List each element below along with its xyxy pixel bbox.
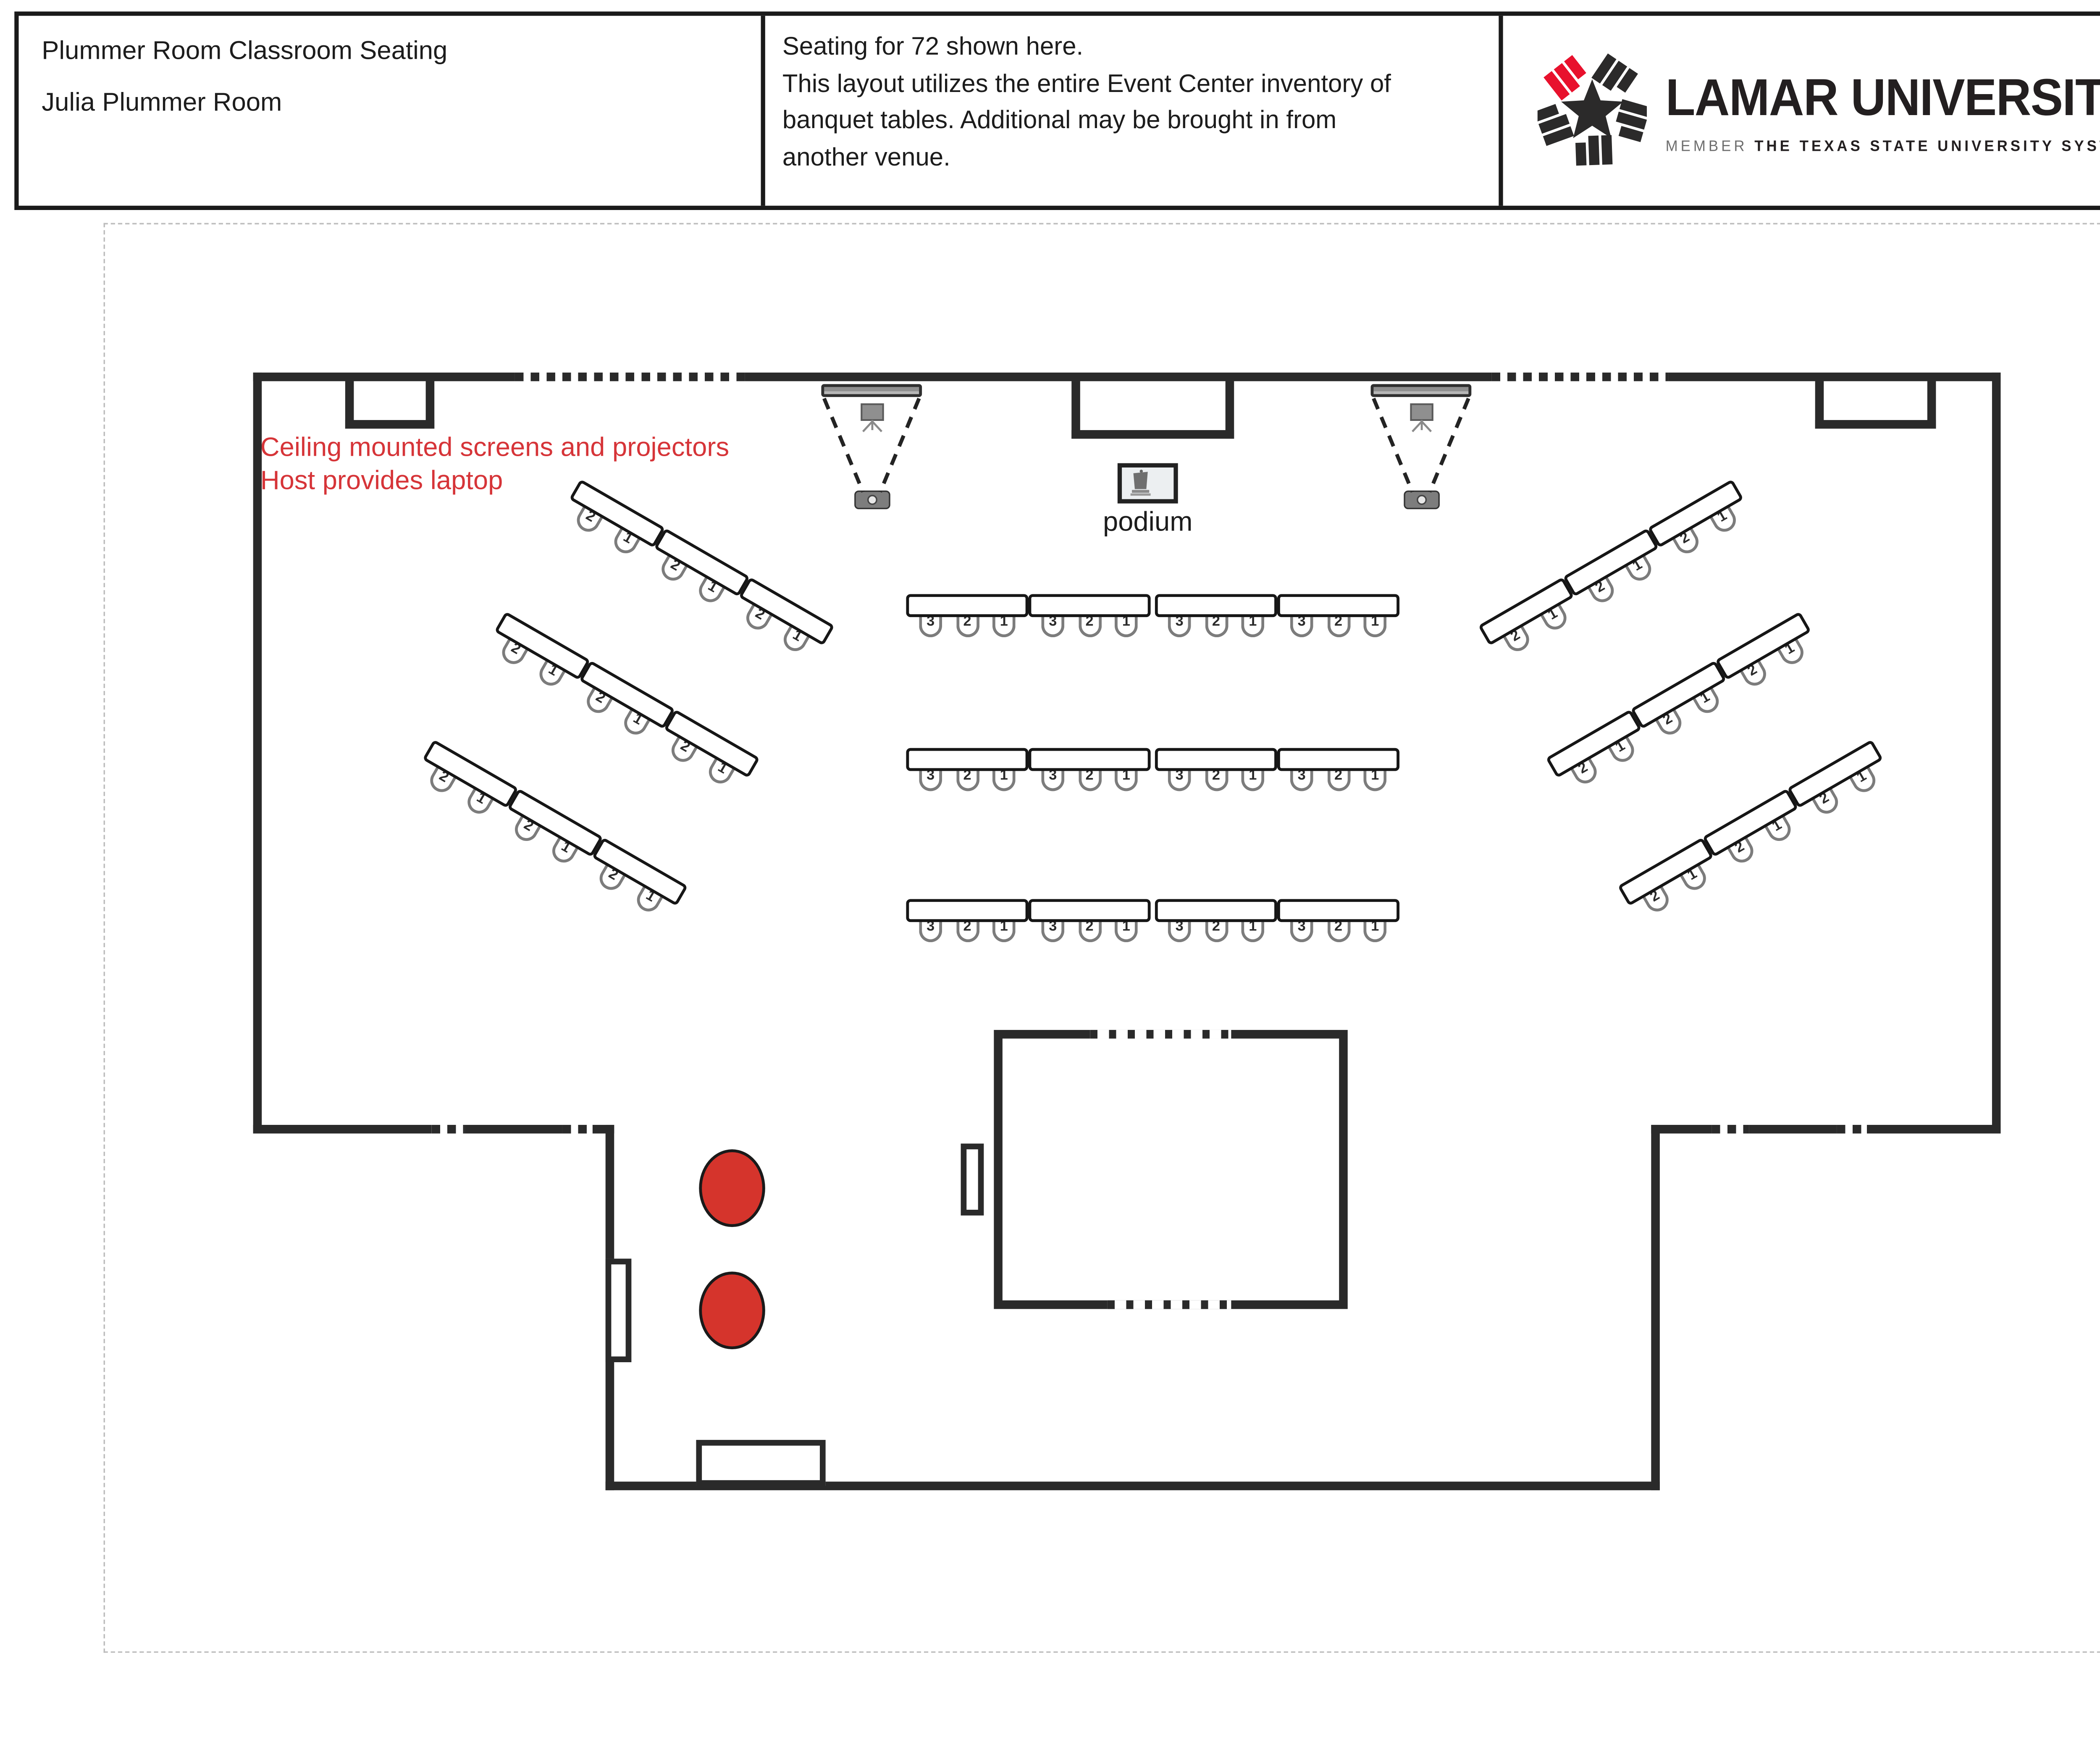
chair-icon: 3 bbox=[1168, 614, 1191, 637]
tripod-screen-icon bbox=[861, 404, 1433, 431]
chair-icon: 1 bbox=[1241, 768, 1264, 791]
banquet-table bbox=[1277, 594, 1399, 617]
chair-icon: 1 bbox=[992, 919, 1016, 942]
chair-icon: 1 bbox=[1115, 768, 1138, 791]
banquet-table bbox=[906, 899, 1028, 922]
chair-icon: 1 bbox=[1241, 919, 1264, 942]
chair-icon: 1 bbox=[1363, 768, 1386, 791]
chair-icon: 3 bbox=[1041, 768, 1064, 791]
banquet-table bbox=[1155, 899, 1277, 922]
chair-icon: 3 bbox=[919, 919, 942, 942]
banquet-table bbox=[906, 594, 1028, 617]
chair-icon: 3 bbox=[1041, 919, 1064, 942]
banquet-table bbox=[1029, 899, 1151, 922]
chair-icon: 3 bbox=[1168, 768, 1191, 791]
chair-icon: 3 bbox=[1041, 614, 1064, 637]
projection-cone bbox=[824, 399, 1468, 492]
banquet-table bbox=[1277, 899, 1399, 922]
banquet-table bbox=[1029, 748, 1151, 771]
projection-overlay bbox=[0, 0, 2100, 1739]
chair-icon: 1 bbox=[1115, 614, 1138, 637]
banquet-table bbox=[1277, 748, 1399, 771]
banquet-table bbox=[1155, 594, 1277, 617]
chair-icon: 1 bbox=[1241, 614, 1264, 637]
chair-icon: 3 bbox=[1290, 768, 1313, 791]
banquet-table bbox=[1029, 594, 1151, 617]
chair-icon: 1 bbox=[1115, 919, 1138, 942]
chair-icon: 1 bbox=[1363, 919, 1386, 942]
banquet-table bbox=[906, 748, 1028, 771]
chair-icon: 3 bbox=[1290, 614, 1313, 637]
chair-icon: 1 bbox=[992, 614, 1016, 637]
chair-icon: 3 bbox=[919, 614, 942, 637]
seating-chart-page: Plummer Room Classroom Seating Julia Plu… bbox=[0, 0, 2100, 1739]
chair-icon: 3 bbox=[919, 768, 942, 791]
chair-icon: 3 bbox=[1290, 919, 1313, 942]
chair-icon: 1 bbox=[992, 768, 1016, 791]
chair-icon: 1 bbox=[1363, 614, 1386, 637]
banquet-table bbox=[1155, 748, 1277, 771]
chair-icon: 3 bbox=[1168, 919, 1191, 942]
